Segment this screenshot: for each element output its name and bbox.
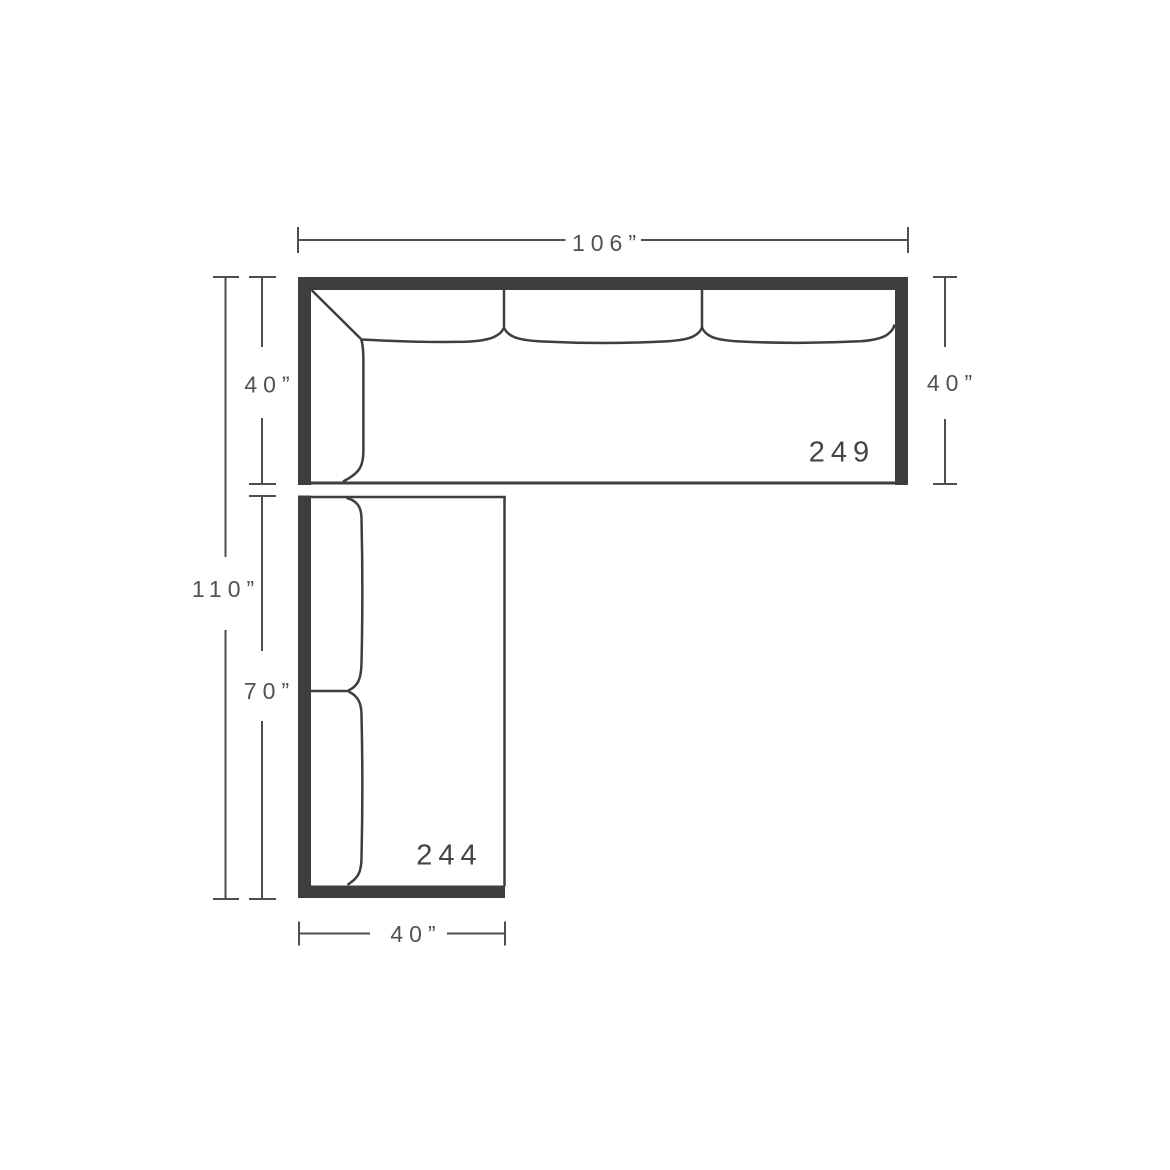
svg-text:244: 244 (416, 840, 482, 872)
svg-text:70”: 70” (244, 678, 295, 704)
svg-text:110”: 110” (192, 576, 260, 602)
svg-text:40”: 40” (390, 921, 441, 947)
svg-text:106”: 106” (572, 230, 642, 256)
svg-text:40”: 40” (927, 370, 978, 396)
svg-text:40”: 40” (244, 372, 295, 398)
svg-text:249: 249 (809, 437, 875, 469)
